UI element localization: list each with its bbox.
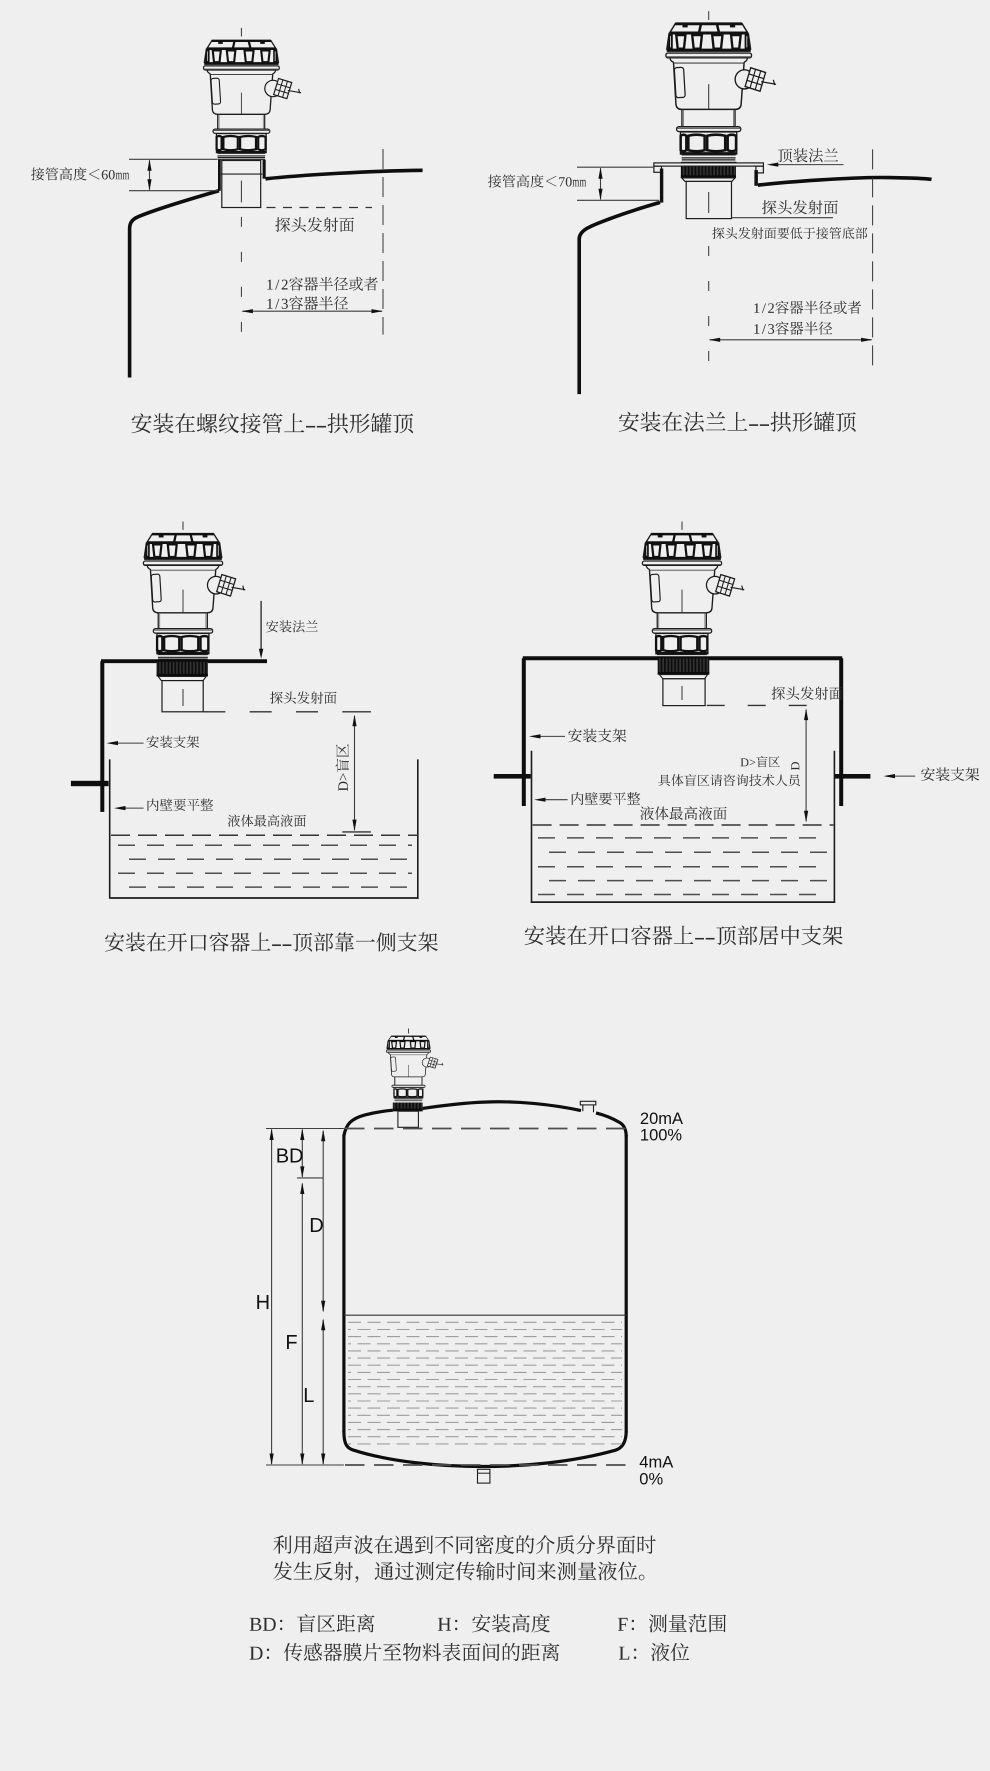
- svg-text:H: H: [256, 1292, 270, 1314]
- svg-text:F: F: [285, 1332, 297, 1354]
- svg-text:4mA: 4mA: [639, 1454, 673, 1472]
- svg-text:20mA: 20mA: [640, 1110, 683, 1128]
- svg-text:0%: 0%: [639, 1470, 663, 1488]
- svg-text:D: D: [309, 1215, 323, 1237]
- svg-text:100%: 100%: [640, 1127, 683, 1145]
- svg-text:L: L: [303, 1385, 314, 1407]
- svg-text:BD: BD: [276, 1145, 304, 1167]
